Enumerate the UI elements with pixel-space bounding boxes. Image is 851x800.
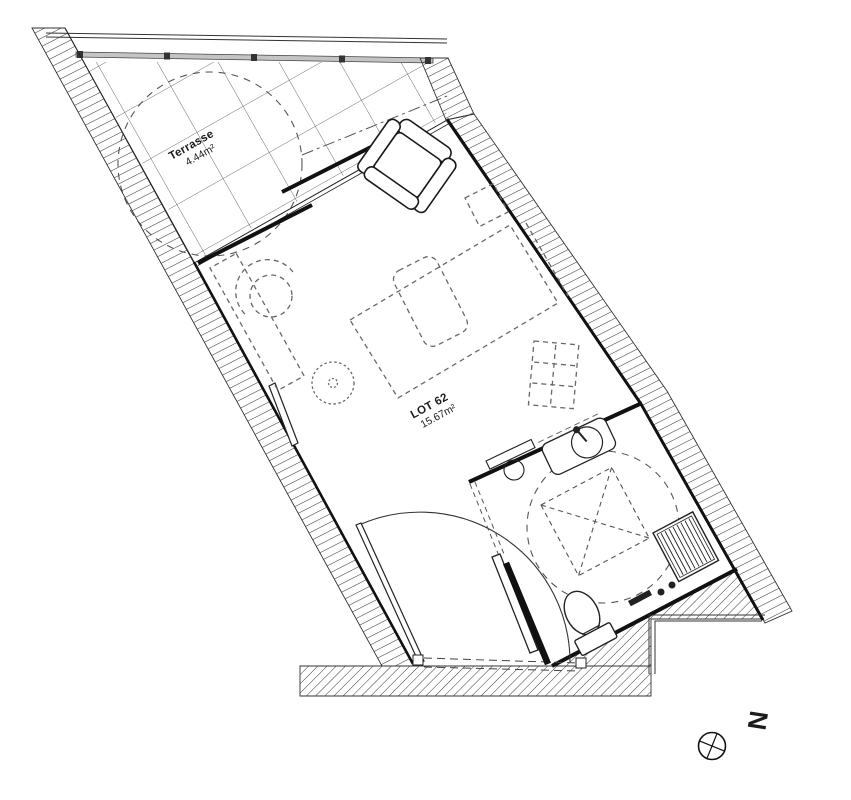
bed	[350, 225, 558, 398]
shower-zone	[541, 467, 649, 575]
ne-wall	[446, 114, 792, 623]
shower-knob-icon	[658, 589, 665, 596]
left-wall-inner-face	[194, 262, 413, 664]
north-letter: N	[742, 709, 775, 732]
shell-chair-seat	[250, 275, 292, 317]
kitchenette-unit	[528, 341, 578, 409]
shell-chair-back	[236, 260, 293, 316]
shower-valve	[628, 590, 652, 607]
door-jamb-left	[413, 655, 423, 665]
sliding-leaf	[492, 554, 538, 653]
pocket-wall	[506, 563, 548, 664]
north-indicator: N	[694, 709, 774, 764]
side-table	[312, 362, 354, 404]
neighbor-contour-outer	[649, 615, 765, 674]
pillow	[390, 253, 471, 350]
bottom-wall	[300, 666, 651, 696]
bathroom-turning-circle	[527, 451, 679, 603]
shower-knob-icon	[669, 582, 676, 589]
vanity	[538, 412, 618, 476]
bathroom-sliding-door	[470, 482, 548, 664]
side-table-center	[329, 379, 338, 388]
lot-label: LOT 62 15.67m²	[409, 390, 459, 433]
neighbor-contour-inner	[655, 621, 762, 674]
terrace-railing	[46, 33, 447, 64]
floor-plan-sheet: Terrasse 4.44m²	[0, 0, 851, 800]
compass-cross	[694, 728, 729, 763]
door-jamb-right	[576, 658, 586, 668]
floor-plan: Terrasse 4.44m²	[0, 0, 851, 800]
